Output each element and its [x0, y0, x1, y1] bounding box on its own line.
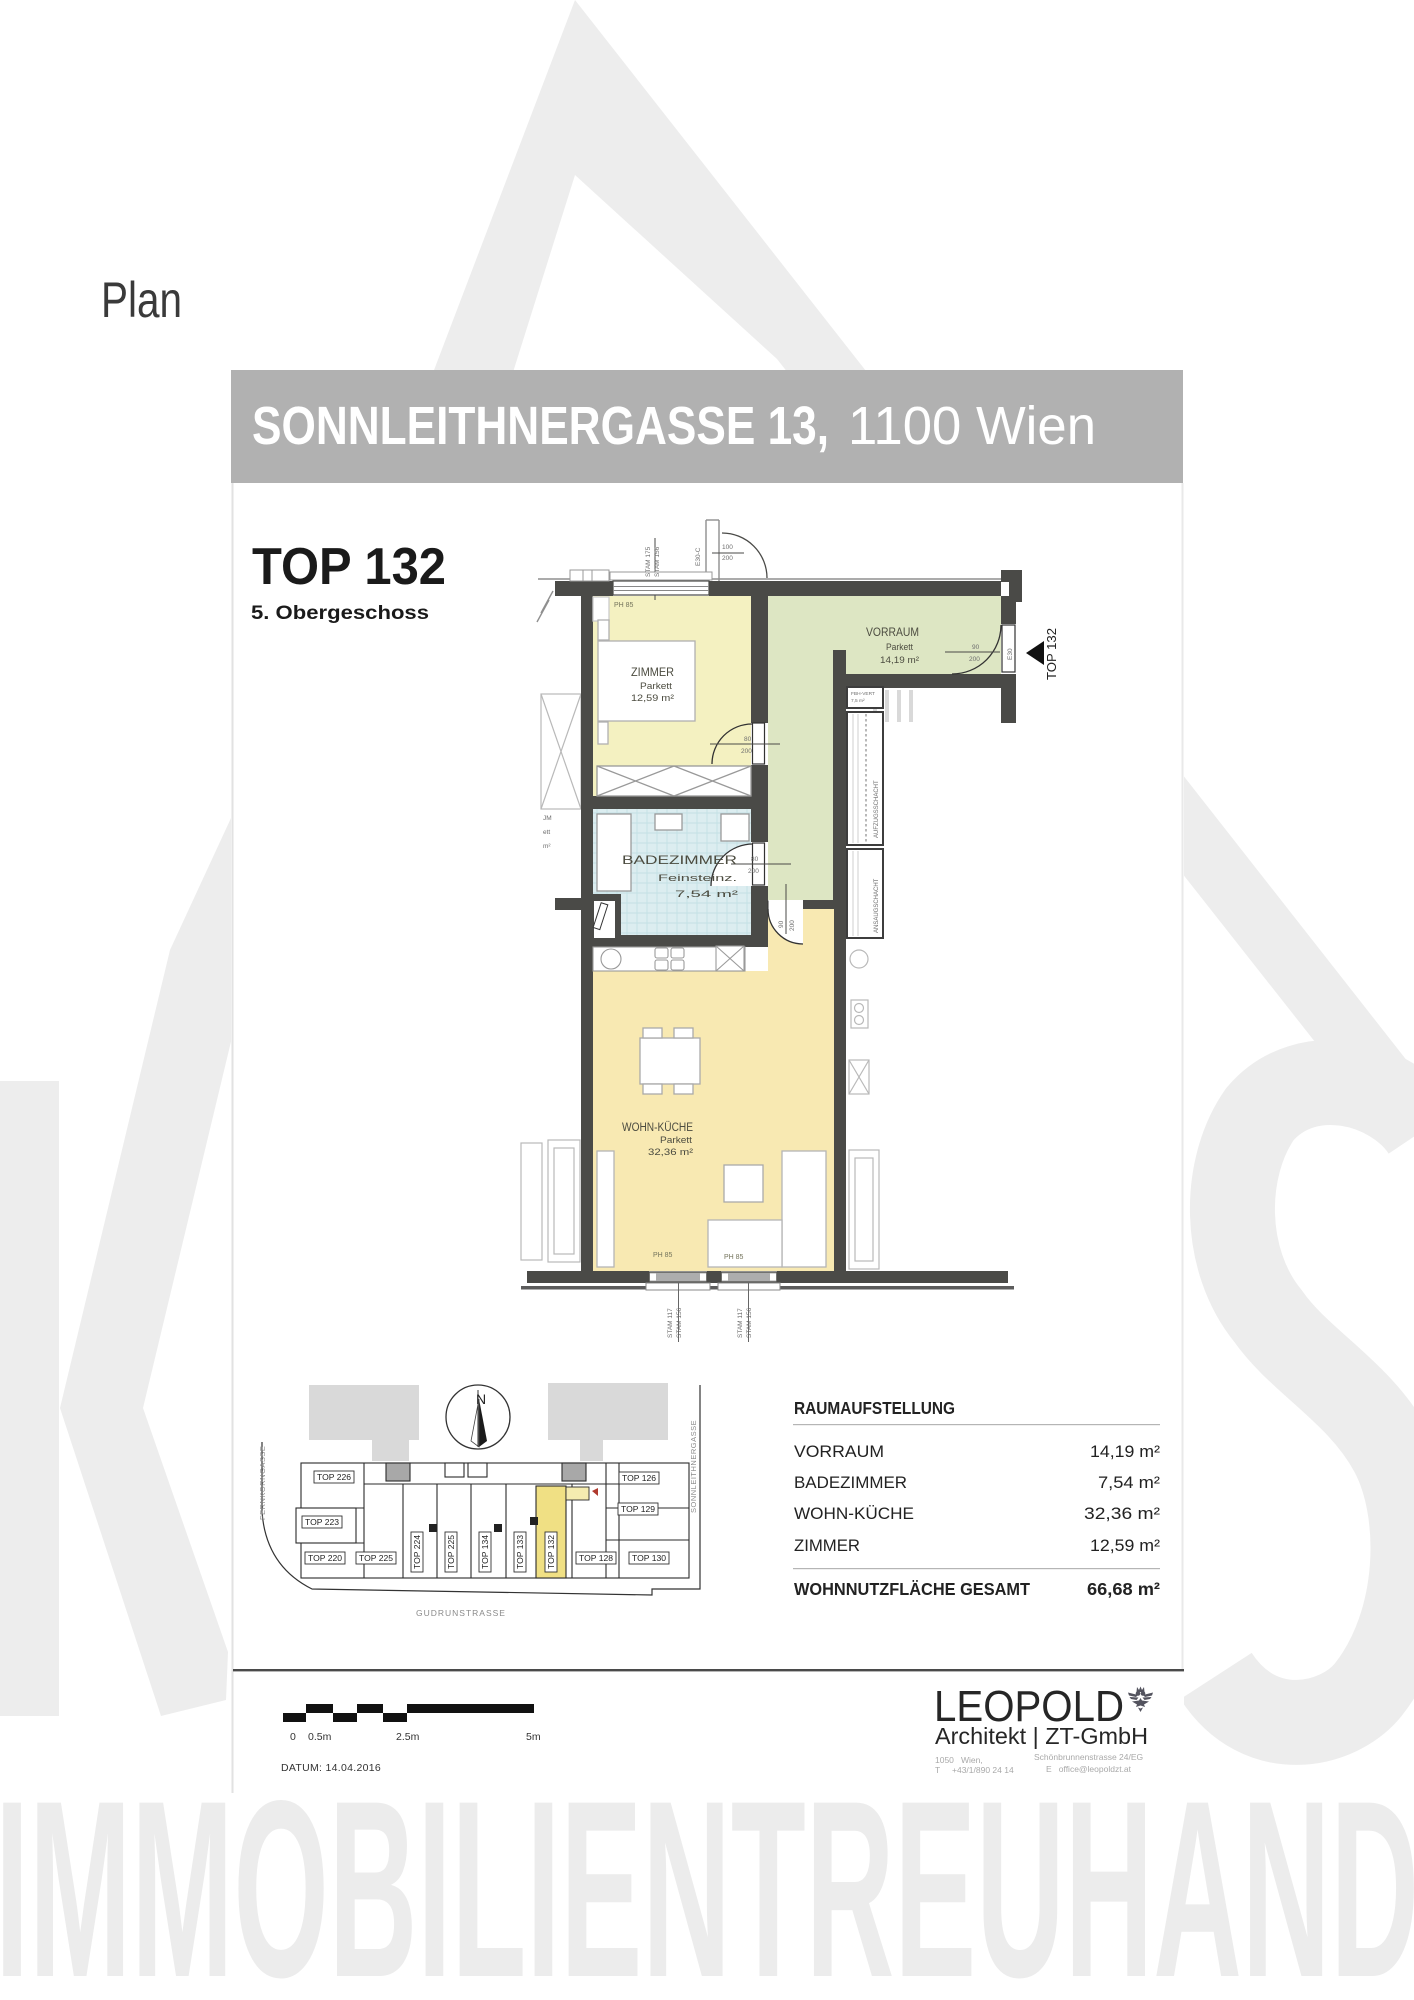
svg-text:80: 80 — [751, 856, 759, 863]
svg-text:ett: ett — [543, 829, 550, 836]
svg-text:66,68 m²: 66,68 m² — [1087, 1579, 1160, 1599]
svg-text:TOP 128: TOP 128 — [579, 1554, 614, 1563]
svg-text:12,59 m²: 12,59 m² — [631, 693, 674, 704]
svg-text:7,54 m²: 7,54 m² — [1098, 1473, 1160, 1492]
svg-text:BADEZIMMER: BADEZIMMER — [622, 855, 737, 867]
svg-text:Architekt | ZT-GmbH: Architekt | ZT-GmbH — [935, 1723, 1148, 1749]
svg-text:SONNLEITHNERGASSE: SONNLEITHNERGASSE — [689, 1420, 698, 1513]
svg-text:TOP 134: TOP 134 — [481, 1534, 490, 1569]
svg-text:FBH-VERT: FBH-VERT — [851, 691, 875, 697]
svg-text:Feinsteinz.: Feinsteinz. — [658, 873, 737, 884]
svg-text:200: 200 — [748, 868, 759, 875]
svg-text:TOP 226: TOP 226 — [317, 1473, 352, 1482]
svg-text:STAM 117: STAM 117 — [737, 1308, 744, 1338]
svg-text:TOP 225: TOP 225 — [359, 1554, 394, 1563]
svg-text:5m: 5m — [526, 1731, 541, 1743]
svg-text:TOP 126: TOP 126 — [622, 1474, 657, 1483]
svg-text:ZIMMER: ZIMMER — [794, 1536, 860, 1555]
svg-text:TOP 132: TOP 132 — [1045, 628, 1059, 680]
svg-text:32,36 m²: 32,36 m² — [648, 1147, 693, 1158]
svg-text:TOP 223: TOP 223 — [305, 1518, 340, 1527]
svg-text:PH 85: PH 85 — [724, 1254, 744, 1261]
svg-text:GUDRUNSTRASSE: GUDRUNSTRASSE — [416, 1608, 506, 1618]
svg-text:200: 200 — [722, 555, 733, 562]
svg-text:14,19 m²: 14,19 m² — [1090, 1442, 1160, 1461]
svg-text:WOHN-KÜCHE: WOHN-KÜCHE — [622, 1122, 693, 1134]
svg-text:TOP 224: TOP 224 — [413, 1534, 422, 1569]
svg-text:80: 80 — [744, 736, 752, 743]
svg-text:90: 90 — [972, 644, 980, 651]
svg-text:E30-C: E30-C — [695, 547, 702, 566]
svg-text:5. Obergeschoss: 5. Obergeschoss — [251, 603, 429, 624]
svg-text:TOP 130: TOP 130 — [632, 1554, 667, 1563]
svg-text:WOHN-KÜCHE: WOHN-KÜCHE — [794, 1504, 914, 1523]
svg-text:7,5 m²: 7,5 m² — [851, 698, 865, 704]
svg-text:STAM 156: STAM 156 — [746, 1307, 753, 1338]
svg-text:Parkett: Parkett — [640, 681, 672, 692]
svg-text:WOHNNUTZFLÄCHE GESAMT: WOHNNUTZFLÄCHE GESAMT — [794, 1579, 1030, 1599]
svg-text:RAUMAUFSTELLUNG: RAUMAUFSTELLUNG — [794, 1398, 955, 1418]
svg-text:BADEZIMMER: BADEZIMMER — [794, 1473, 907, 1492]
svg-text:TOP 132: TOP 132 — [547, 1534, 556, 1569]
svg-text:VORRAUM: VORRAUM — [794, 1442, 884, 1461]
svg-text:ZIMMER: ZIMMER — [631, 667, 674, 679]
svg-text:Parkett: Parkett — [660, 1135, 692, 1146]
svg-text:0: 0 — [290, 1731, 296, 1743]
svg-text:ANSAUGSCHACHT: ANSAUGSCHACHT — [874, 878, 880, 933]
svg-text:T +43/1/890 24 14: T +43/1/890 24 14 — [935, 1765, 1014, 1775]
svg-text:Schönbrunnenstrasse 24/EG: Schönbrunnenstrasse 24/EG — [1034, 1752, 1143, 1762]
svg-text:7,54 m²: 7,54 m² — [675, 889, 738, 900]
svg-text:PH 85: PH 85 — [614, 602, 634, 609]
svg-text:STAM 156: STAM 156 — [676, 1307, 683, 1338]
svg-text:E30: E30 — [1007, 648, 1014, 660]
svg-text:TOP 129: TOP 129 — [621, 1505, 656, 1514]
svg-text:Plan: Plan — [101, 272, 182, 328]
svg-text:AUFZUGSSCHACHT: AUFZUGSSCHACHT — [874, 780, 880, 838]
svg-text:TOP 220: TOP 220 — [308, 1554, 343, 1563]
svg-text:STAM 117: STAM 117 — [667, 1308, 674, 1338]
svg-text:200: 200 — [741, 748, 752, 755]
svg-text:TOP 225: TOP 225 — [447, 1534, 456, 1569]
svg-text:FERNKORNGASSE: FERNKORNGASSE — [258, 1446, 267, 1520]
svg-text:TOP 132: TOP 132 — [252, 538, 446, 596]
svg-text:1100 Wien: 1100 Wien — [848, 396, 1096, 456]
svg-text:m²: m² — [543, 843, 551, 850]
svg-text:200: 200 — [789, 920, 796, 931]
svg-text:E office@leopoldzt.at: E office@leopoldzt.at — [1046, 1764, 1132, 1774]
svg-text:Parkett: Parkett — [886, 642, 913, 653]
svg-text:100: 100 — [722, 544, 733, 551]
svg-text:PH 85: PH 85 — [653, 1252, 673, 1259]
svg-text:12,59 m²: 12,59 m² — [1090, 1536, 1160, 1555]
svg-text:32,36 m²: 32,36 m² — [1084, 1504, 1160, 1523]
svg-text:200: 200 — [969, 656, 980, 663]
svg-text:VORRAUM: VORRAUM — [866, 627, 919, 639]
svg-text:SONNLEITHNERGASSE 13,: SONNLEITHNERGASSE 13, — [252, 396, 829, 456]
svg-text:STAM 175: STAM 175 — [645, 546, 652, 577]
svg-text:DATUM: 14.04.2016: DATUM: 14.04.2016 — [281, 1762, 381, 1774]
svg-text:14,19 m²: 14,19 m² — [880, 655, 919, 666]
svg-text:N: N — [476, 1391, 486, 1407]
svg-text:STAM 156: STAM 156 — [654, 546, 661, 577]
svg-text:TOP 133: TOP 133 — [516, 1534, 525, 1569]
svg-text:0.5m: 0.5m — [308, 1731, 332, 1743]
svg-text:1050 Wien,: 1050 Wien, — [935, 1755, 983, 1765]
svg-text:90: 90 — [778, 920, 785, 928]
svg-text:JM: JM — [543, 815, 552, 822]
svg-text:2.5m: 2.5m — [396, 1731, 420, 1743]
